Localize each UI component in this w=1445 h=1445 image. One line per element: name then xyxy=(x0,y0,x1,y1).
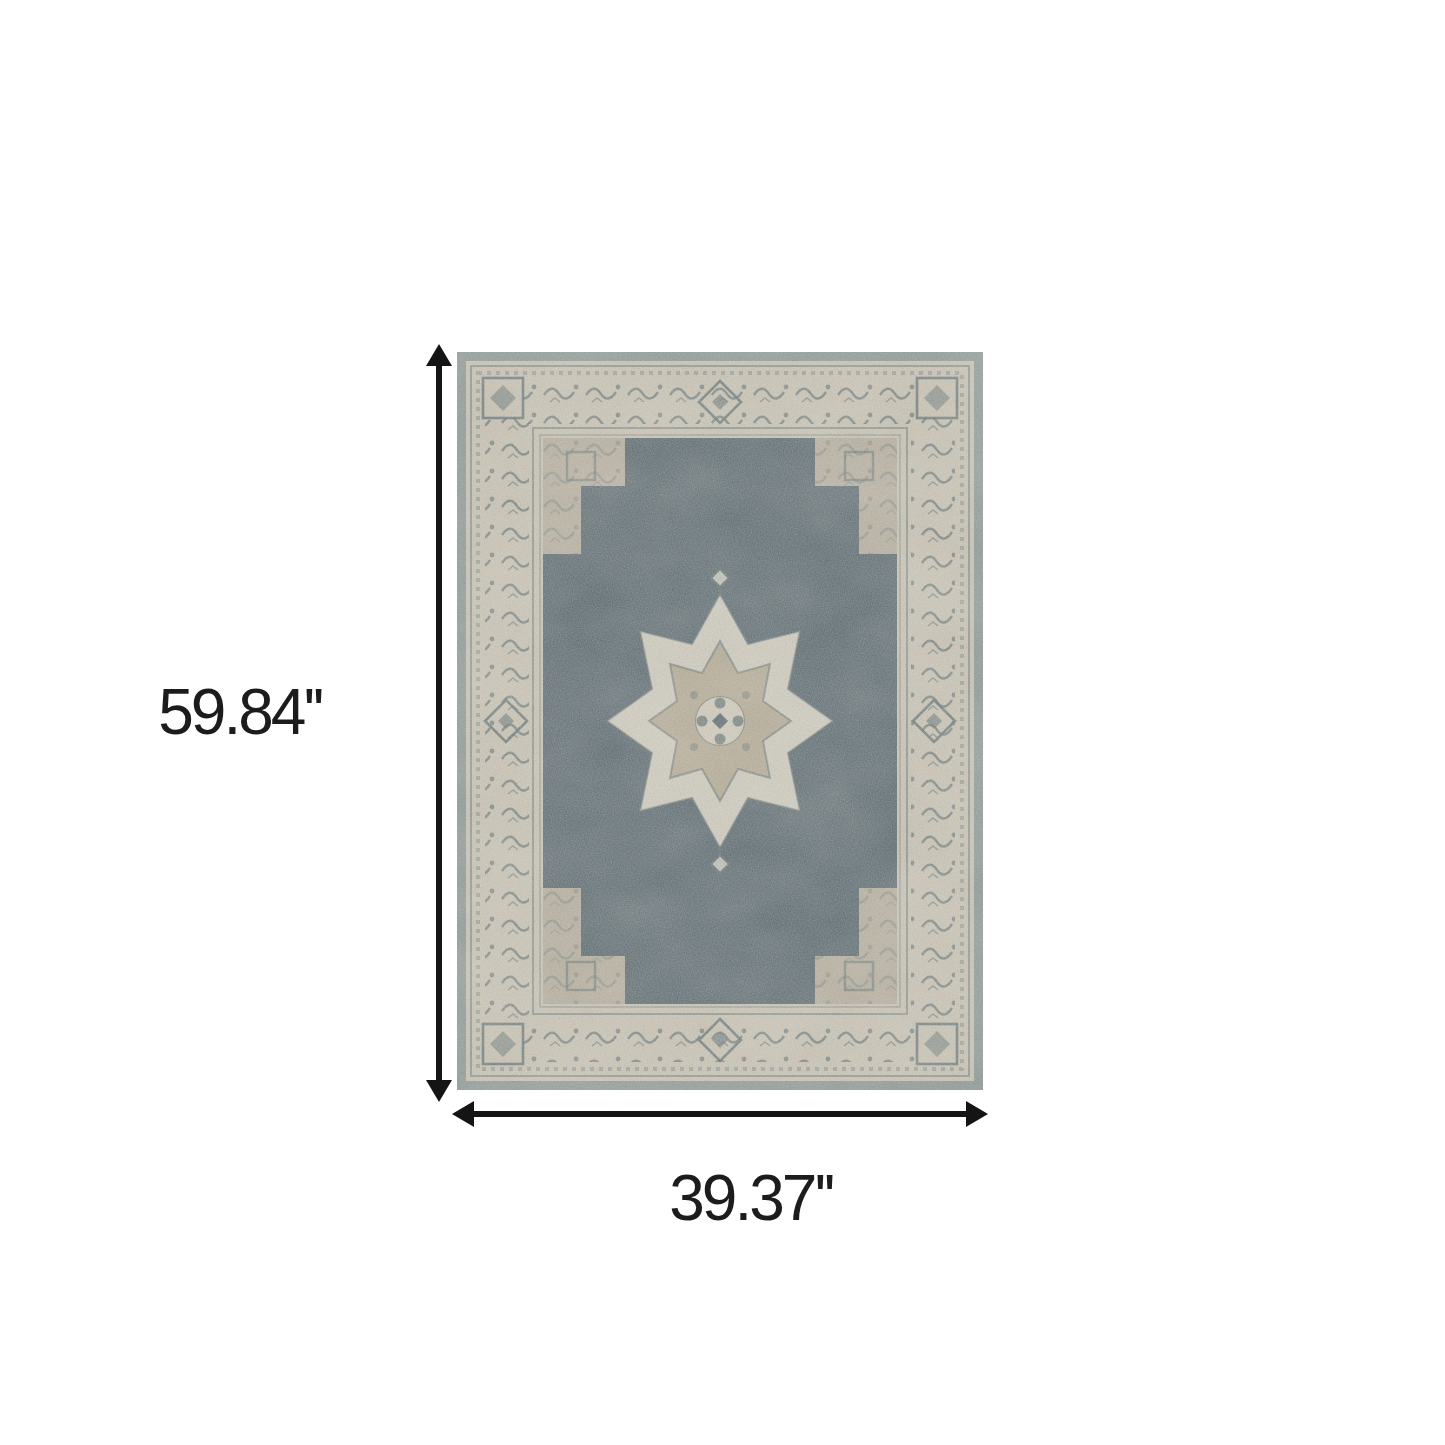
rug-image xyxy=(457,352,983,1090)
arrowhead-left-icon xyxy=(452,1101,474,1127)
arrowhead-down-icon xyxy=(426,1080,452,1102)
width-arrow-shaft xyxy=(472,1111,968,1117)
height-dimension-label: 59.84'' xyxy=(130,680,350,744)
arrowhead-up-icon xyxy=(426,344,452,366)
arrowhead-right-icon xyxy=(966,1101,988,1127)
height-arrow-shaft xyxy=(436,362,442,1084)
rug-texture-distress xyxy=(457,352,983,1090)
product-dimension-image: 59.84'' 39.37'' xyxy=(0,0,1445,1445)
width-dimension-label: 39.37'' xyxy=(641,1166,861,1230)
rug-illustration xyxy=(457,352,983,1090)
